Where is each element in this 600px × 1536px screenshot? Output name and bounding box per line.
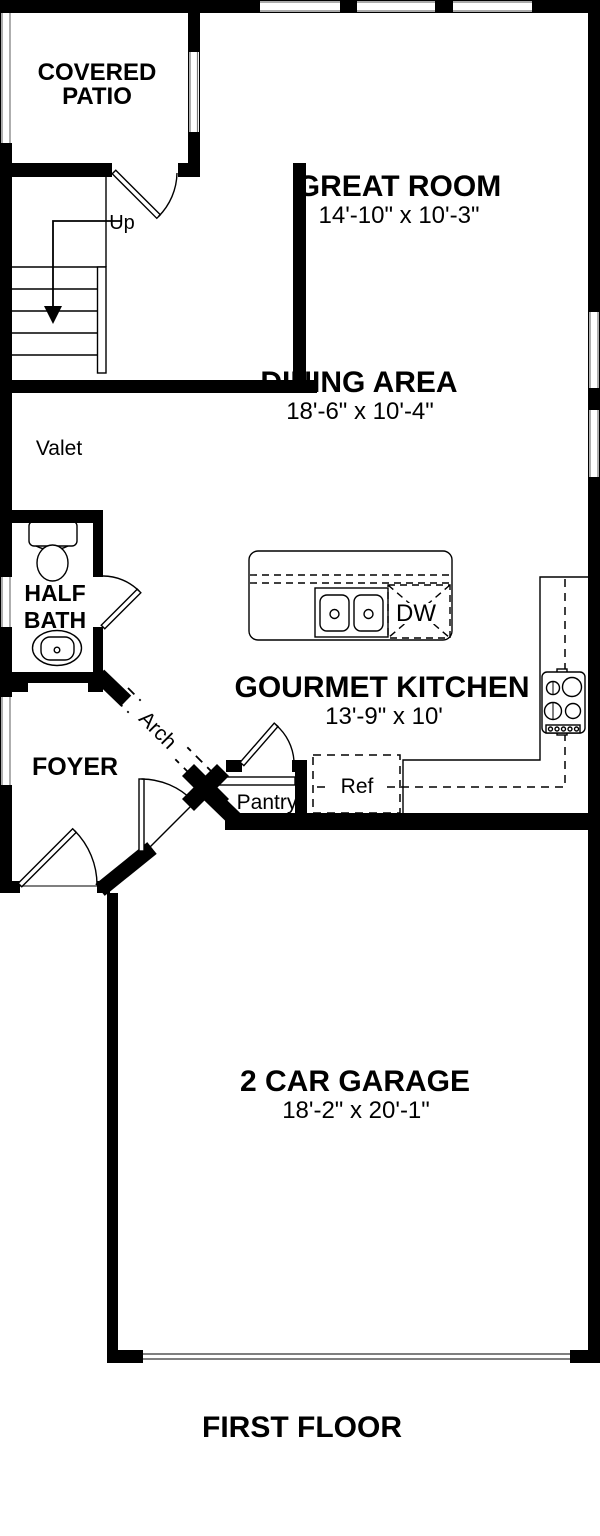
wall-halfbath-bottom [0,672,103,683]
covered-patio-label-line2: PATIO [62,83,132,110]
wall-halfbath-right-lower [93,627,103,672]
window-top-2 [357,1,435,12]
wall-patio-bottom [0,163,112,177]
dining-area-dims: 18'-6" x 10'-4" [286,398,434,425]
window-top-3 [453,1,532,12]
garage-label: 2 CAR GARAGE [240,1065,470,1098]
half-bath-label-line1: HALF [24,580,85,606]
refrigerator-label: Ref [341,775,374,798]
valet-label: Valet [36,437,82,460]
wall-halfbath-right-upper [93,510,103,577]
gourmet-kitchen-dims: 13'-9" x 10' [325,703,443,730]
toilet-bowl [37,545,68,581]
floor-plan: COVERED PATIO GREAT ROOM 14'-10" x 10'-3… [0,0,600,1536]
wall-garage-bottom-left [107,1350,143,1363]
first-floor-title: FIRST FLOOR [202,1411,402,1444]
gourmet-kitchen-label: GOURMET KITCHEN [235,671,530,704]
half-bath-label-line2: BATH [24,607,86,633]
great-room-dims: 14'-10" x 10'-3" [319,202,480,229]
wall-foyer-bottom-left [0,881,20,893]
foyer-label: FOYER [32,753,118,781]
dishwasher-label: DW [396,600,436,627]
wall-pantry-top-right [292,760,307,772]
cooktop [542,669,585,735]
wall-pantry-top-left [226,760,242,772]
great-room-label: GREAT ROOM [297,170,501,203]
pantry-shelf [217,777,295,785]
garage-entry-door-leaf [139,779,144,851]
covered-patio-label-line1: COVERED [38,59,157,86]
dining-area-label: DINING AREA [260,366,457,399]
wall-patio-bottom-jamb [178,163,200,177]
wall-garage-bottom-right [570,1350,600,1363]
cooktop-body [542,672,585,733]
floor-plan-svg: COVERED PATIO GREAT ROOM 14'-10" x 10'-3… [0,0,600,1536]
stairs-up-label: Up [109,212,135,234]
wall-halfbath-top [0,510,103,523]
toilet-tank [29,521,77,546]
window-top-1 [260,1,340,12]
wall-garage-left [107,893,118,1363]
garage-dims: 18'-2" x 20'-1" [282,1097,430,1124]
pantry-label: Pantry [237,791,298,814]
wall-garage-top [225,813,600,830]
wall-halfbath-bottom-left [0,683,28,692]
stair-rail [98,267,107,373]
wall-exterior-right [588,13,600,1363]
